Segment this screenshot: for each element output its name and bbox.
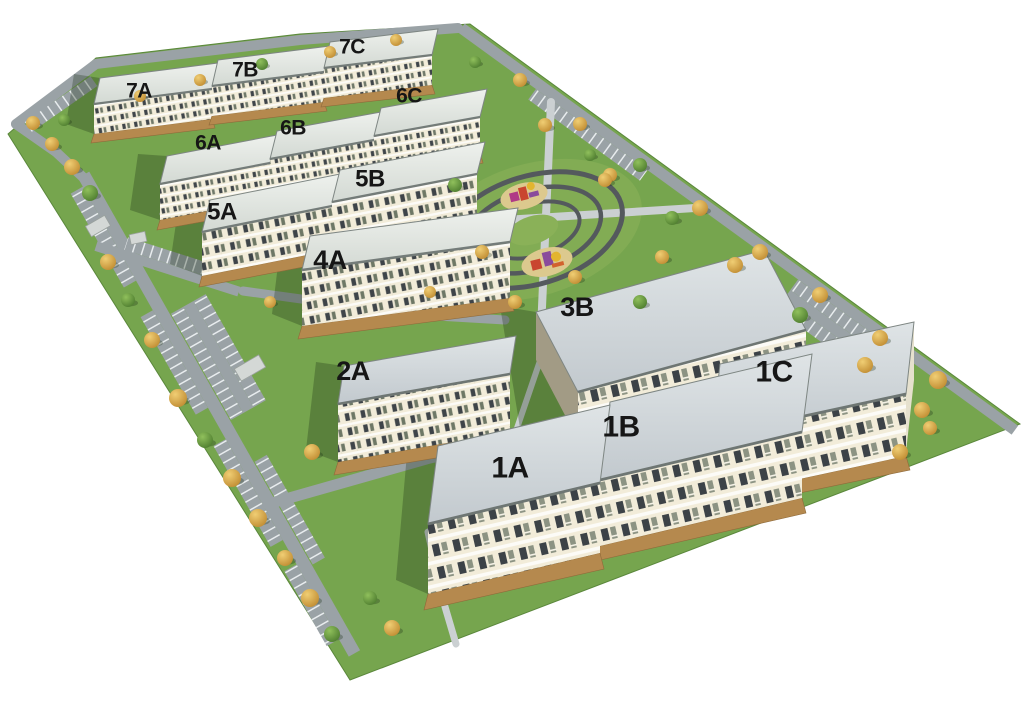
- building-label-7c: 7C: [339, 36, 365, 59]
- building-label-6c: 6C: [396, 85, 422, 108]
- site-plan-rendering: 7A 7B 7C 6A 6B 6C 5A 5B 4A 3B 2A 1A 1B 1…: [0, 0, 1024, 725]
- building-label-1c: 1C: [755, 356, 792, 389]
- building-label-2a: 2A: [336, 356, 370, 386]
- building-label-1a: 1A: [491, 452, 528, 485]
- site-plan: 7A 7B 7C 6A 6B 6C 5A 5B 4A 3B 2A 1A 1B 1…: [0, 0, 1024, 725]
- building-label-1b: 1B: [602, 411, 639, 444]
- building-label-5b: 5B: [355, 166, 385, 193]
- building-label-3b: 3B: [560, 292, 594, 322]
- building-label-6a: 6A: [195, 132, 221, 155]
- building-label-4a: 4A: [313, 245, 347, 275]
- building-label-7b: 7B: [232, 59, 258, 82]
- building-label-5a: 5A: [207, 199, 237, 226]
- building-label-6b: 6B: [280, 117, 306, 140]
- building-label-7a: 7A: [126, 80, 152, 103]
